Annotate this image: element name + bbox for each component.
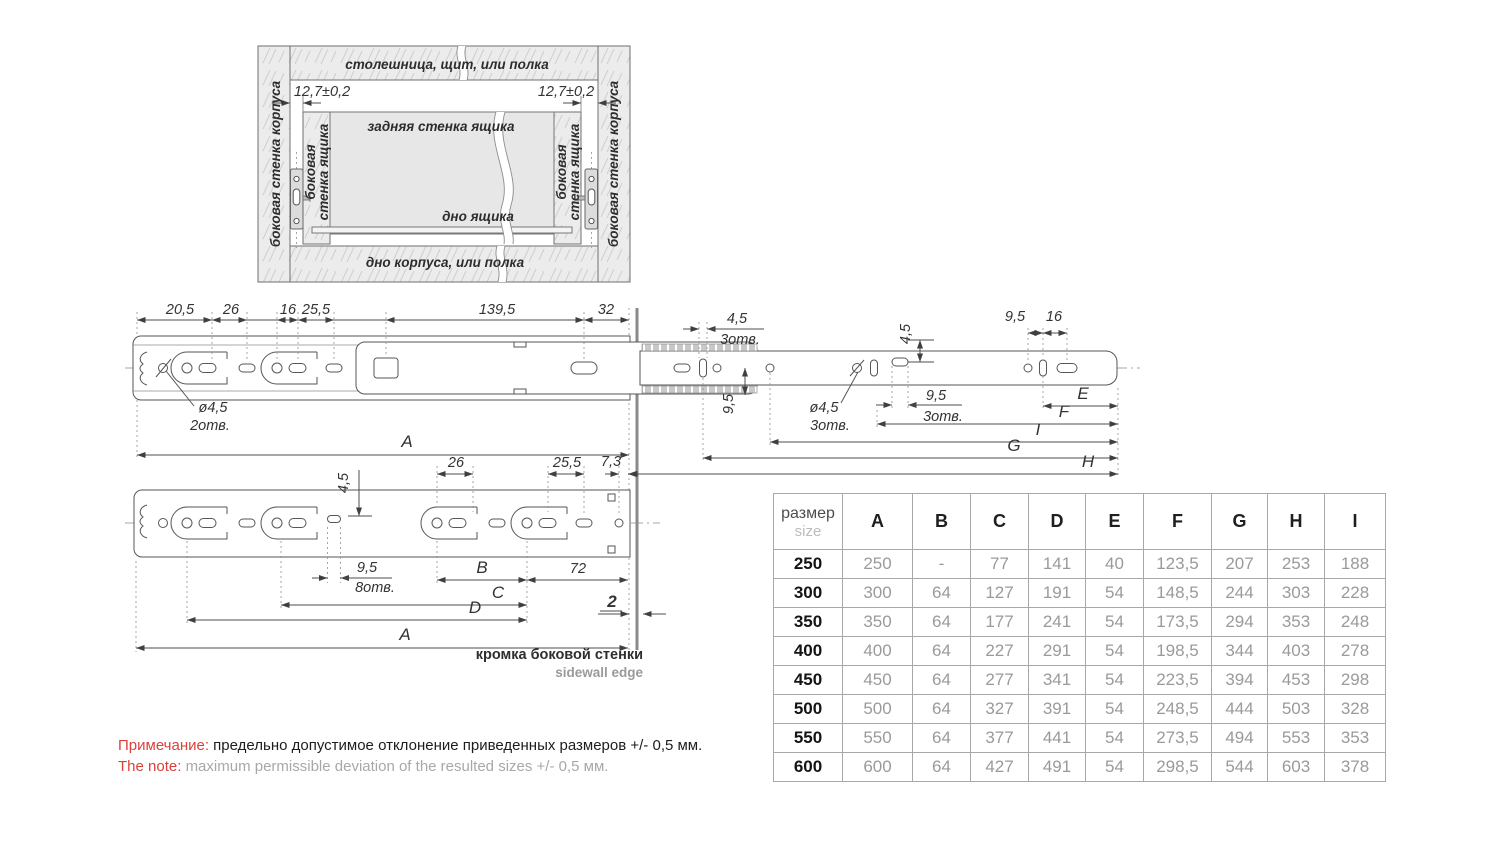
value-cell: 177 bbox=[971, 608, 1029, 637]
value-cell: 64 bbox=[913, 579, 971, 608]
holes-3a: 3отв. bbox=[720, 332, 760, 348]
value-cell: 303 bbox=[1268, 579, 1325, 608]
note-line-ru: Примечание: предельно допустимое отклоне… bbox=[118, 735, 798, 756]
value-cell: 77 bbox=[971, 550, 1029, 579]
value-cell: 227 bbox=[971, 637, 1029, 666]
holes-8: 8отв. bbox=[355, 580, 395, 596]
value-cell: 253 bbox=[1268, 550, 1325, 579]
col-header-F: F bbox=[1144, 494, 1212, 550]
dim-F: F bbox=[1059, 402, 1071, 421]
size-table: размер size A B C D E F G H I 250250-771… bbox=[773, 493, 1386, 782]
value-cell: 277 bbox=[971, 666, 1029, 695]
value-cell: 273,5 bbox=[1144, 724, 1212, 753]
value-cell: 64 bbox=[913, 637, 971, 666]
col-header-E: E bbox=[1086, 494, 1144, 550]
table-row: 5505506437744154273,5494553353 bbox=[774, 724, 1386, 753]
dim-16b: 16 bbox=[1046, 309, 1063, 325]
value-cell: 494 bbox=[1212, 724, 1268, 753]
table-row: 250250-7714140123,5207253188 bbox=[774, 550, 1386, 579]
value-cell: 403 bbox=[1268, 637, 1325, 666]
dia-4-5b-label: ø4,5 bbox=[809, 400, 839, 416]
value-cell: 123,5 bbox=[1144, 550, 1212, 579]
value-cell: 544 bbox=[1212, 753, 1268, 782]
value-cell: 298,5 bbox=[1144, 753, 1212, 782]
table-row: 6006006442749154298,5544603378 bbox=[774, 753, 1386, 782]
cabinet-right-sidewall-label: боковая стенка корпуса bbox=[606, 80, 621, 247]
note-block: Примечание: предельно допустимое отклоне… bbox=[118, 735, 798, 777]
value-cell: 127 bbox=[971, 579, 1029, 608]
value-cell: 491 bbox=[1029, 753, 1086, 782]
dim-2: 2 bbox=[606, 592, 617, 611]
row-size-cell: 500 bbox=[774, 695, 843, 724]
drawer-member-drawing: 4,5 26 25,5 7,3 9,5 8отв. bbox=[125, 454, 666, 680]
col-header-H: H bbox=[1268, 494, 1325, 550]
dim-9-5-vert: 9,5 bbox=[721, 393, 737, 414]
note-text-ru: предельно допустимое отклонение приведен… bbox=[213, 737, 702, 754]
drawer-bottom-label: дно ящика bbox=[442, 209, 514, 224]
dim-9-5-lower: 9,5 bbox=[357, 560, 378, 576]
value-cell: 54 bbox=[1086, 637, 1144, 666]
cabinet-section-diagram: 12,7±0,2 12,7±0,2 столешница, щит, или п… bbox=[258, 46, 630, 282]
size-header-en: size bbox=[774, 523, 842, 540]
sidewall-edge-label-en: sidewall edge bbox=[555, 665, 643, 680]
value-cell: 248 bbox=[1325, 608, 1386, 637]
dim-C: C bbox=[492, 583, 505, 602]
value-cell: 550 bbox=[843, 724, 913, 753]
value-cell: 64 bbox=[913, 753, 971, 782]
dim-H: H bbox=[1082, 452, 1095, 471]
slide-assembly-drawing: 20,5 26 16 25,5 139,5 32 ø4,5 2отв. A 4,… bbox=[125, 302, 1140, 478]
value-cell: 54 bbox=[1086, 579, 1144, 608]
col-header-C: C bbox=[971, 494, 1029, 550]
value-cell: 54 bbox=[1086, 695, 1144, 724]
col-header-A: A bbox=[843, 494, 913, 550]
size-header-cell: размер size bbox=[774, 494, 843, 550]
dim-E: E bbox=[1077, 384, 1089, 403]
row-size-cell: 450 bbox=[774, 666, 843, 695]
dim-D: D bbox=[469, 598, 481, 617]
value-cell: 553 bbox=[1268, 724, 1325, 753]
value-cell: 148,5 bbox=[1144, 579, 1212, 608]
value-cell: 64 bbox=[913, 666, 971, 695]
col-header-B: B bbox=[913, 494, 971, 550]
value-cell: 503 bbox=[1268, 695, 1325, 724]
value-cell: 64 bbox=[913, 608, 971, 637]
value-cell: 341 bbox=[1029, 666, 1086, 695]
col-header-I: I bbox=[1325, 494, 1386, 550]
table-row: 5005006432739154248,5444503328 bbox=[774, 695, 1386, 724]
value-cell: 198,5 bbox=[1144, 637, 1212, 666]
dim-25-5: 25,5 bbox=[301, 302, 331, 318]
value-cell: 54 bbox=[1086, 753, 1144, 782]
top-panel-label: столешница, щит, или полка bbox=[345, 57, 549, 72]
dim-7-3: 7,3 bbox=[601, 454, 621, 470]
value-cell: 173,5 bbox=[1144, 608, 1212, 637]
dia-4-5-label: ø4,5 bbox=[198, 400, 228, 416]
value-cell: 353 bbox=[1325, 724, 1386, 753]
table-row: 4004006422729154198,5344403278 bbox=[774, 637, 1386, 666]
value-cell: 64 bbox=[913, 695, 971, 724]
col-header-G: G bbox=[1212, 494, 1268, 550]
drawer-slide-datasheet: 12,7±0,2 12,7±0,2 столешница, щит, или п… bbox=[0, 0, 1500, 844]
drawer-left-sidewall-label-2: стенка ящика bbox=[316, 123, 331, 220]
dim-26: 26 bbox=[222, 302, 240, 318]
dim-139-5: 139,5 bbox=[479, 302, 516, 318]
table-row: 3503506417724154173,5294353248 bbox=[774, 608, 1386, 637]
dim-4-5-lower: 4,5 bbox=[336, 472, 352, 493]
note-label-en: The note: bbox=[118, 758, 181, 775]
value-cell: 278 bbox=[1325, 637, 1386, 666]
drawer-back-label: задняя стенка ящика bbox=[367, 119, 515, 134]
value-cell: 450 bbox=[843, 666, 913, 695]
note-text-en: maximum permissible deviation of the res… bbox=[186, 758, 609, 775]
row-size-cell: 400 bbox=[774, 637, 843, 666]
dim-B: B bbox=[476, 558, 487, 577]
holes-3b: 3отв. bbox=[810, 418, 850, 434]
dim-4-5a: 4,5 bbox=[727, 311, 748, 327]
dim-16: 16 bbox=[280, 302, 297, 318]
value-cell: 353 bbox=[1268, 608, 1325, 637]
cabinet-left-sidewall-label: боковая стенка корпуса bbox=[268, 80, 283, 247]
gap-dim-left-label: 12,7±0,2 bbox=[294, 84, 350, 100]
value-cell: 191 bbox=[1029, 579, 1086, 608]
value-cell: 453 bbox=[1268, 666, 1325, 695]
value-cell: 378 bbox=[1325, 753, 1386, 782]
value-cell: 350 bbox=[843, 608, 913, 637]
dim-G: G bbox=[1007, 436, 1020, 455]
value-cell: 54 bbox=[1086, 608, 1144, 637]
value-cell: 248,5 bbox=[1144, 695, 1212, 724]
value-cell: 391 bbox=[1029, 695, 1086, 724]
dim-9-5b: 9,5 bbox=[926, 388, 947, 404]
dim-26-lower: 26 bbox=[447, 455, 465, 471]
value-cell: 328 bbox=[1325, 695, 1386, 724]
edge-offset-dim: 2 bbox=[598, 592, 666, 614]
value-cell: 54 bbox=[1086, 724, 1144, 753]
value-cell: 250 bbox=[843, 550, 913, 579]
drawer-right-sidewall-label-2: стенка ящика bbox=[567, 123, 582, 220]
dim-32: 32 bbox=[598, 302, 614, 318]
ball-retainer-bottom bbox=[642, 386, 757, 393]
value-cell: 291 bbox=[1029, 637, 1086, 666]
note-line-en: The note: maximum permissible deviation … bbox=[118, 756, 798, 777]
value-cell: 64 bbox=[913, 724, 971, 753]
dim-4-5-vert: 4,5 bbox=[898, 323, 914, 344]
value-cell: 207 bbox=[1212, 550, 1268, 579]
value-cell: 327 bbox=[971, 695, 1029, 724]
value-cell: 377 bbox=[971, 724, 1029, 753]
dim-9-5c: 9,5 bbox=[1005, 309, 1026, 325]
sidewall-edge-label-ru: кромка боковой стенки bbox=[476, 647, 643, 663]
value-cell: 603 bbox=[1268, 753, 1325, 782]
value-cell: 298 bbox=[1325, 666, 1386, 695]
value-cell: 427 bbox=[971, 753, 1029, 782]
gap-dim-right-label: 12,7±0,2 bbox=[538, 84, 594, 100]
size-header-ru: размер bbox=[774, 504, 842, 523]
holes-2-label: 2отв. bbox=[189, 418, 230, 434]
value-cell: 344 bbox=[1212, 637, 1268, 666]
value-cell: 141 bbox=[1029, 550, 1086, 579]
table-header-row: размер size A B C D E F G H I bbox=[774, 494, 1386, 550]
row-size-cell: 350 bbox=[774, 608, 843, 637]
value-cell: 300 bbox=[843, 579, 913, 608]
col-header-D: D bbox=[1029, 494, 1086, 550]
size-table-body: 250250-7714140123,5207253188300300641271… bbox=[774, 550, 1386, 782]
value-cell: 40 bbox=[1086, 550, 1144, 579]
drawer-bottom-strip bbox=[312, 227, 572, 233]
value-cell: 400 bbox=[843, 637, 913, 666]
value-cell: 188 bbox=[1325, 550, 1386, 579]
dim-I: I bbox=[1036, 420, 1041, 439]
dim-20-5: 20,5 bbox=[165, 302, 195, 318]
dim-72: 72 bbox=[570, 561, 586, 577]
value-cell: 223,5 bbox=[1144, 666, 1212, 695]
value-cell: 244 bbox=[1212, 579, 1268, 608]
value-cell: 228 bbox=[1325, 579, 1386, 608]
value-cell: 500 bbox=[843, 695, 913, 724]
table-row: 3003006412719154148,5244303228 bbox=[774, 579, 1386, 608]
table-row: 4504506427734154223,5394453298 bbox=[774, 666, 1386, 695]
dim-25-5-lower: 25,5 bbox=[552, 455, 582, 471]
value-cell: 600 bbox=[843, 753, 913, 782]
value-cell: 294 bbox=[1212, 608, 1268, 637]
holes-3c: 3отв. bbox=[923, 409, 963, 425]
dim-A-upper: A bbox=[400, 432, 412, 451]
value-cell: 54 bbox=[1086, 666, 1144, 695]
bottom-panel-label: дно корпуса, или полка bbox=[366, 255, 525, 270]
row-size-cell: 300 bbox=[774, 579, 843, 608]
value-cell: - bbox=[913, 550, 971, 579]
row-size-cell: 250 bbox=[774, 550, 843, 579]
dim-A-lower: A bbox=[398, 625, 410, 644]
value-cell: 241 bbox=[1029, 608, 1086, 637]
value-cell: 394 bbox=[1212, 666, 1268, 695]
note-label-ru: Примечание: bbox=[118, 737, 209, 754]
value-cell: 444 bbox=[1212, 695, 1268, 724]
value-cell: 441 bbox=[1029, 724, 1086, 753]
